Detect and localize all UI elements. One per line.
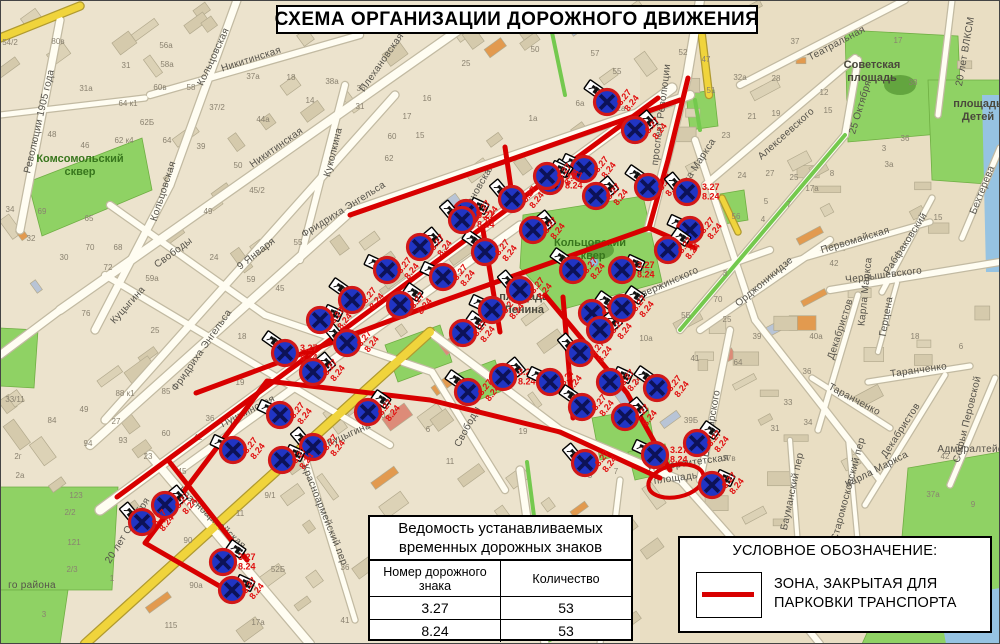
house-number: 3 <box>42 610 47 619</box>
house-number: 115 <box>165 621 178 630</box>
house-number: 31 <box>356 102 365 111</box>
svg-text:3.27: 3.27 <box>702 182 720 192</box>
house-number: 17 <box>894 36 903 45</box>
house-number: 5Б <box>681 311 691 320</box>
signs-table-header: Номер дорожного знака Количество <box>370 561 631 597</box>
svg-text:3.27: 3.27 <box>477 210 495 220</box>
house-number: 70 <box>714 295 723 304</box>
svg-text:8.24: 8.24 <box>637 270 655 280</box>
house-number: 94 <box>84 439 93 448</box>
house-number: 76 <box>82 309 91 318</box>
house-number: 6а <box>576 99 585 108</box>
house-number: 11 <box>236 509 245 518</box>
house-number: 62 <box>385 154 394 163</box>
house-number: 15 <box>824 106 833 115</box>
house-number: 57 <box>591 49 600 58</box>
no-stopping-sign-3-27 <box>450 208 475 233</box>
house-number: 6 <box>426 425 431 434</box>
house-number: 46 <box>81 141 90 150</box>
house-number: 34 <box>6 205 15 214</box>
house-number: 38 <box>909 78 918 87</box>
house-number: 17 <box>403 112 412 121</box>
house-number: 15 <box>934 213 943 222</box>
house-number: 3 <box>723 269 728 278</box>
signs-table-body: 3.27538.2453 <box>370 597 631 642</box>
house-number: 65 <box>85 214 94 223</box>
house-number: 90а <box>189 581 203 590</box>
house-number: 58 <box>187 83 196 92</box>
house-number: 39 <box>753 332 762 341</box>
house-number: 3 <box>882 144 887 153</box>
house-number: 30 <box>60 253 69 262</box>
house-number: 121 <box>67 538 81 547</box>
svg-text:8.24: 8.24 <box>670 455 688 465</box>
house-number: 24 <box>738 171 747 180</box>
house-number: 11 <box>446 457 455 466</box>
square-label: Детей <box>962 111 994 123</box>
house-number: 15 <box>416 131 425 140</box>
house-number: 44а <box>256 115 270 124</box>
no-stopping-sign-3-27 <box>643 443 668 468</box>
house-number: 16 <box>423 94 432 103</box>
house-number: 64 к1 <box>118 99 138 108</box>
house-number: 23 <box>144 452 153 461</box>
house-number: 69 <box>38 207 47 216</box>
house-number: 34 <box>804 418 813 427</box>
house-number: 52Б <box>271 565 285 574</box>
house-number: 2г <box>14 452 21 461</box>
house-number: 18 <box>911 332 920 341</box>
svg-text:8.24: 8.24 <box>702 192 720 202</box>
house-number: 39 <box>197 142 206 151</box>
house-number: 47 <box>702 55 711 64</box>
house-number: 27 <box>766 169 775 178</box>
house-number: 37 <box>791 37 800 46</box>
legend-heading: УСЛОВНОЕ ОБОЗНАЧЕНИЕ: <box>680 543 990 559</box>
house-number: 32 <box>27 234 36 243</box>
house-number: 6 <box>959 342 964 351</box>
house-number: 64 <box>163 136 172 145</box>
house-number: 45/2 <box>249 186 265 195</box>
red-line-swatch <box>696 572 762 618</box>
house-number: 37/2 <box>209 103 225 112</box>
house-number: 39Б <box>684 416 698 425</box>
house-number: 18 <box>287 73 296 82</box>
house-number: 85 <box>162 387 171 396</box>
no-stopping-sign-3-27 <box>273 341 298 366</box>
house-number: 10а <box>639 334 653 343</box>
scheme-title-banner: СХЕМА ОРГАНИЗАЦИИ ДОРОЖНОГО ДВИЖЕНИЯ <box>276 5 758 34</box>
table-cell: 53 <box>501 597 631 619</box>
house-number: 38а <box>325 77 339 86</box>
house-number: 56а <box>159 41 173 50</box>
house-number: 4 <box>761 215 766 224</box>
park-label: сквер <box>64 166 95 178</box>
house-number: 40а <box>809 332 823 341</box>
house-number: 18 <box>238 332 247 341</box>
house-number: 7 <box>614 467 619 476</box>
house-number: 36 <box>206 414 215 423</box>
house-number: 49 <box>204 207 213 216</box>
signs-table: Ведомость устанавливаемых временных доро… <box>368 515 633 641</box>
street-label: го района <box>8 580 56 591</box>
park-label: Комсомольский <box>36 153 123 165</box>
house-number: 49 <box>80 405 89 414</box>
house-number: 1 <box>110 574 115 583</box>
house-number: 55 <box>294 238 303 247</box>
house-number: 7 <box>787 200 792 209</box>
house-number: 3а <box>885 160 894 169</box>
house-number: 27 <box>112 417 121 426</box>
house-number: 21 <box>748 112 757 121</box>
svg-text:8.24: 8.24 <box>477 220 495 230</box>
house-number: 54/2 <box>2 38 18 47</box>
map-legend: УСЛОВНОЕ ОБОЗНАЧЕНИЕ: ЗОНА, ЗАКРЫТАЯ ДЛЯ… <box>678 536 992 633</box>
house-number: 2/3 <box>66 565 78 574</box>
house-number: 72 <box>104 263 113 272</box>
svg-text:3.27: 3.27 <box>300 343 318 353</box>
house-number: 50 <box>531 45 540 54</box>
house-number: 50 <box>234 161 243 170</box>
house-number: 1а <box>529 114 538 123</box>
house-number: 5 <box>764 197 769 206</box>
no-stopping-sign-3-27 <box>491 365 516 390</box>
sign-code-label: 3.278.24 <box>702 182 720 202</box>
house-number: 60 <box>388 132 397 141</box>
sign-code-label: 3.278.24 <box>637 260 655 280</box>
house-number: 70 <box>86 243 95 252</box>
svg-text:3.27: 3.27 <box>238 552 256 562</box>
no-parking-zone-sample-line <box>702 592 754 597</box>
house-number: 59а <box>145 274 159 283</box>
svg-text:3.27: 3.27 <box>637 260 655 270</box>
square-label: Советская <box>844 59 901 71</box>
house-number: 93 <box>119 436 128 445</box>
house-number: 31 <box>771 424 780 433</box>
house-number: 62 к4 <box>114 136 134 145</box>
signs-table-col1-header: Номер дорожного знака <box>370 561 501 596</box>
house-number: 60 <box>162 429 171 438</box>
house-number: 33 <box>784 398 793 407</box>
no-stopping-sign-3-27 <box>675 180 700 205</box>
sign-code-label: 3.278.24 <box>238 552 256 572</box>
house-number: 31 <box>122 61 131 70</box>
table-cell: 3.27 <box>370 597 501 619</box>
house-number: 9/1 <box>264 491 276 500</box>
house-number: 32а <box>733 73 747 82</box>
house-number: 41 <box>691 354 700 363</box>
house-number: 25 <box>790 173 799 182</box>
svg-text:8.24: 8.24 <box>238 562 256 572</box>
house-number: 123 <box>69 491 83 500</box>
house-number: 2/2 <box>64 508 76 517</box>
house-number: 41 <box>341 616 350 625</box>
house-number: 23 <box>722 131 731 140</box>
house-number: 37а <box>246 72 260 81</box>
house-number: 62Б <box>140 118 154 127</box>
table-cell: 8.24 <box>370 620 501 642</box>
signs-table-col2-header: Количество <box>501 561 631 596</box>
no-stopping-sign-3-27 <box>610 258 635 283</box>
house-number: 88 к1 <box>115 389 135 398</box>
house-number: 9 <box>971 500 976 509</box>
house-number: 19 <box>519 427 528 436</box>
house-number: 28 <box>772 74 781 83</box>
house-number: 25 <box>462 59 471 68</box>
house-number: 17а <box>251 618 265 627</box>
house-number: 90 <box>184 536 193 545</box>
house-number: 8 <box>830 169 835 178</box>
house-number: 59 <box>247 275 256 284</box>
house-number: 55 <box>613 67 622 76</box>
house-number: 52 <box>679 48 688 57</box>
signs-table-title: Ведомость устанавливаемых временных доро… <box>370 517 631 561</box>
table-row: 3.2753 <box>370 597 631 620</box>
house-number: 80в <box>51 37 64 46</box>
house-number: 84 <box>48 416 57 425</box>
house-number: 19 <box>772 109 781 118</box>
sign-code-label: 3.278.24 <box>477 210 495 230</box>
house-number: 37а <box>926 490 940 499</box>
house-number: 36 <box>901 134 910 143</box>
house-number: 14 <box>306 96 315 105</box>
no-stopping-sign-3-27 <box>211 550 236 575</box>
legend-item-label: ЗОНА, ЗАКРЫТАЯ ДЛЯ ПАРКОВКИ ТРАНСПОРТА <box>774 575 957 613</box>
house-number: 68 <box>114 243 123 252</box>
house-number: 24 <box>210 253 219 262</box>
house-number: 2а <box>16 471 25 480</box>
house-number: 56 <box>732 212 741 221</box>
house-number: 42 <box>830 259 839 268</box>
house-number: 58а <box>160 60 174 69</box>
house-number: 36 <box>803 367 812 376</box>
scheme-title: СХЕМА ОРГАНИЗАЦИИ ДОРОЖНОГО ДВИЖЕНИЯ <box>275 9 760 31</box>
street-label: Адмиралтейская площадь <box>937 444 1000 455</box>
table-row: 8.2453 <box>370 620 631 642</box>
table-cell: 53 <box>501 620 631 642</box>
house-number: 25 <box>151 326 160 335</box>
traffic-scheme-page: 54/280в3131а56а58а60в5864 к162Б62 к46448… <box>0 0 1000 644</box>
house-number: 25 <box>723 315 732 324</box>
house-number: 17а <box>805 184 819 193</box>
house-number: 64 <box>734 358 743 367</box>
house-number: 48 <box>48 130 57 139</box>
house-number: 45 <box>276 284 285 293</box>
square-label: площадь <box>847 72 897 84</box>
house-number: 60в <box>153 83 166 92</box>
house-number: 33/11 <box>5 395 25 404</box>
house-number: 51 <box>707 86 716 95</box>
house-number: 31а <box>79 84 93 93</box>
square-label: площадь <box>953 98 1000 110</box>
house-number: 12 <box>820 88 829 97</box>
